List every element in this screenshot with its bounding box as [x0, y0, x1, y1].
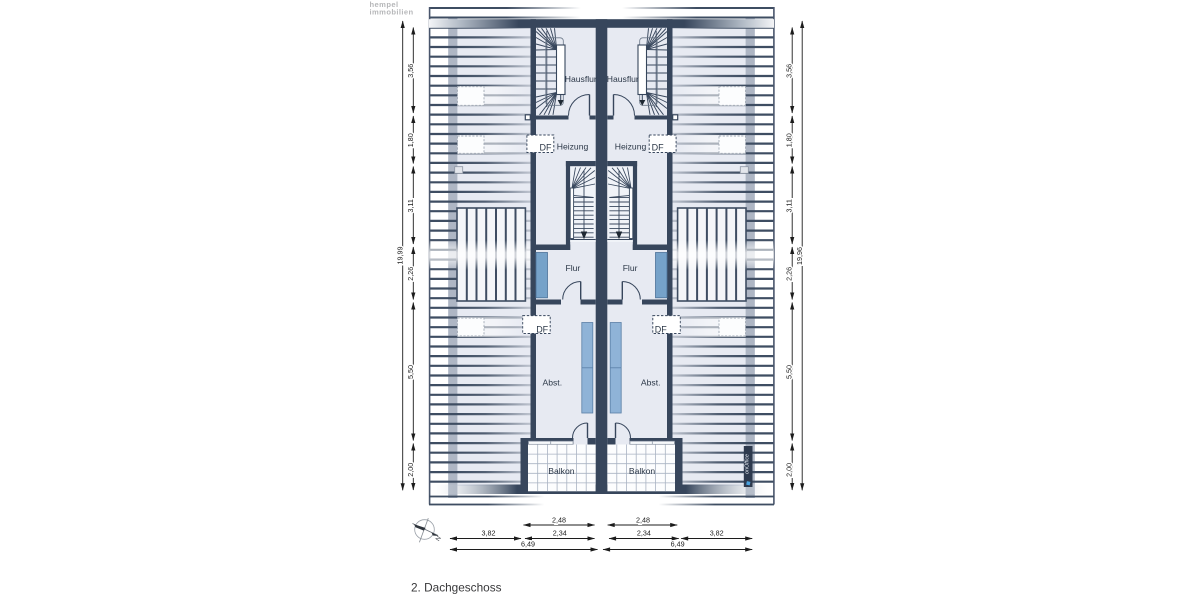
- svg-text:6,49: 6,49: [521, 540, 535, 549]
- svg-text:Balkon: Balkon: [629, 466, 655, 476]
- svg-text:1,80: 1,80: [785, 133, 794, 147]
- svg-text:2,48: 2,48: [636, 516, 650, 525]
- svg-text:5,50: 5,50: [785, 365, 794, 379]
- svg-text:Flur: Flur: [565, 263, 580, 273]
- svg-text:3,11: 3,11: [785, 199, 794, 212]
- svg-text:immobilien: immobilien: [370, 8, 414, 17]
- svg-text:3,56: 3,56: [785, 64, 794, 78]
- svg-text:Hausflur: Hausflur: [607, 74, 639, 84]
- svg-text:2,34: 2,34: [553, 529, 567, 538]
- svg-text:3,82: 3,82: [710, 529, 724, 538]
- svg-text:DF: DF: [652, 143, 664, 153]
- svg-text:2. Dachgeschoss: 2. Dachgeschoss: [411, 581, 502, 595]
- svg-text:2,00: 2,00: [785, 463, 794, 477]
- svg-text:2,00: 2,00: [406, 463, 415, 477]
- svg-text:1,80: 1,80: [406, 133, 415, 147]
- svg-text:Balkon: Balkon: [548, 466, 574, 476]
- svg-text:2,26: 2,26: [406, 267, 415, 281]
- svg-text:Abst.: Abst.: [543, 378, 563, 388]
- svg-text:Heizung: Heizung: [557, 141, 589, 151]
- svg-text:6,49: 6,49: [671, 540, 685, 549]
- svg-text:Heizung: Heizung: [615, 141, 647, 151]
- svg-text:Hausflur: Hausflur: [565, 74, 597, 84]
- svg-text:3,82: 3,82: [482, 529, 496, 538]
- svg-text:DF: DF: [536, 325, 548, 335]
- svg-text:DF: DF: [540, 143, 552, 153]
- svg-text:Flur: Flur: [623, 263, 638, 273]
- svg-text:19,99: 19,99: [396, 247, 405, 265]
- svg-text:3,11: 3,11: [406, 199, 415, 212]
- svg-text:5,50: 5,50: [406, 365, 415, 379]
- svg-text:onOffice: onOffice: [745, 454, 751, 474]
- svg-text:2,48: 2,48: [552, 516, 566, 525]
- svg-text:DF: DF: [655, 325, 667, 335]
- svg-text:2,26: 2,26: [785, 267, 794, 281]
- svg-text:3,56: 3,56: [406, 64, 415, 78]
- svg-text:2,34: 2,34: [637, 529, 651, 538]
- svg-text:Abst.: Abst.: [641, 378, 661, 388]
- svg-text:19,96: 19,96: [795, 247, 804, 265]
